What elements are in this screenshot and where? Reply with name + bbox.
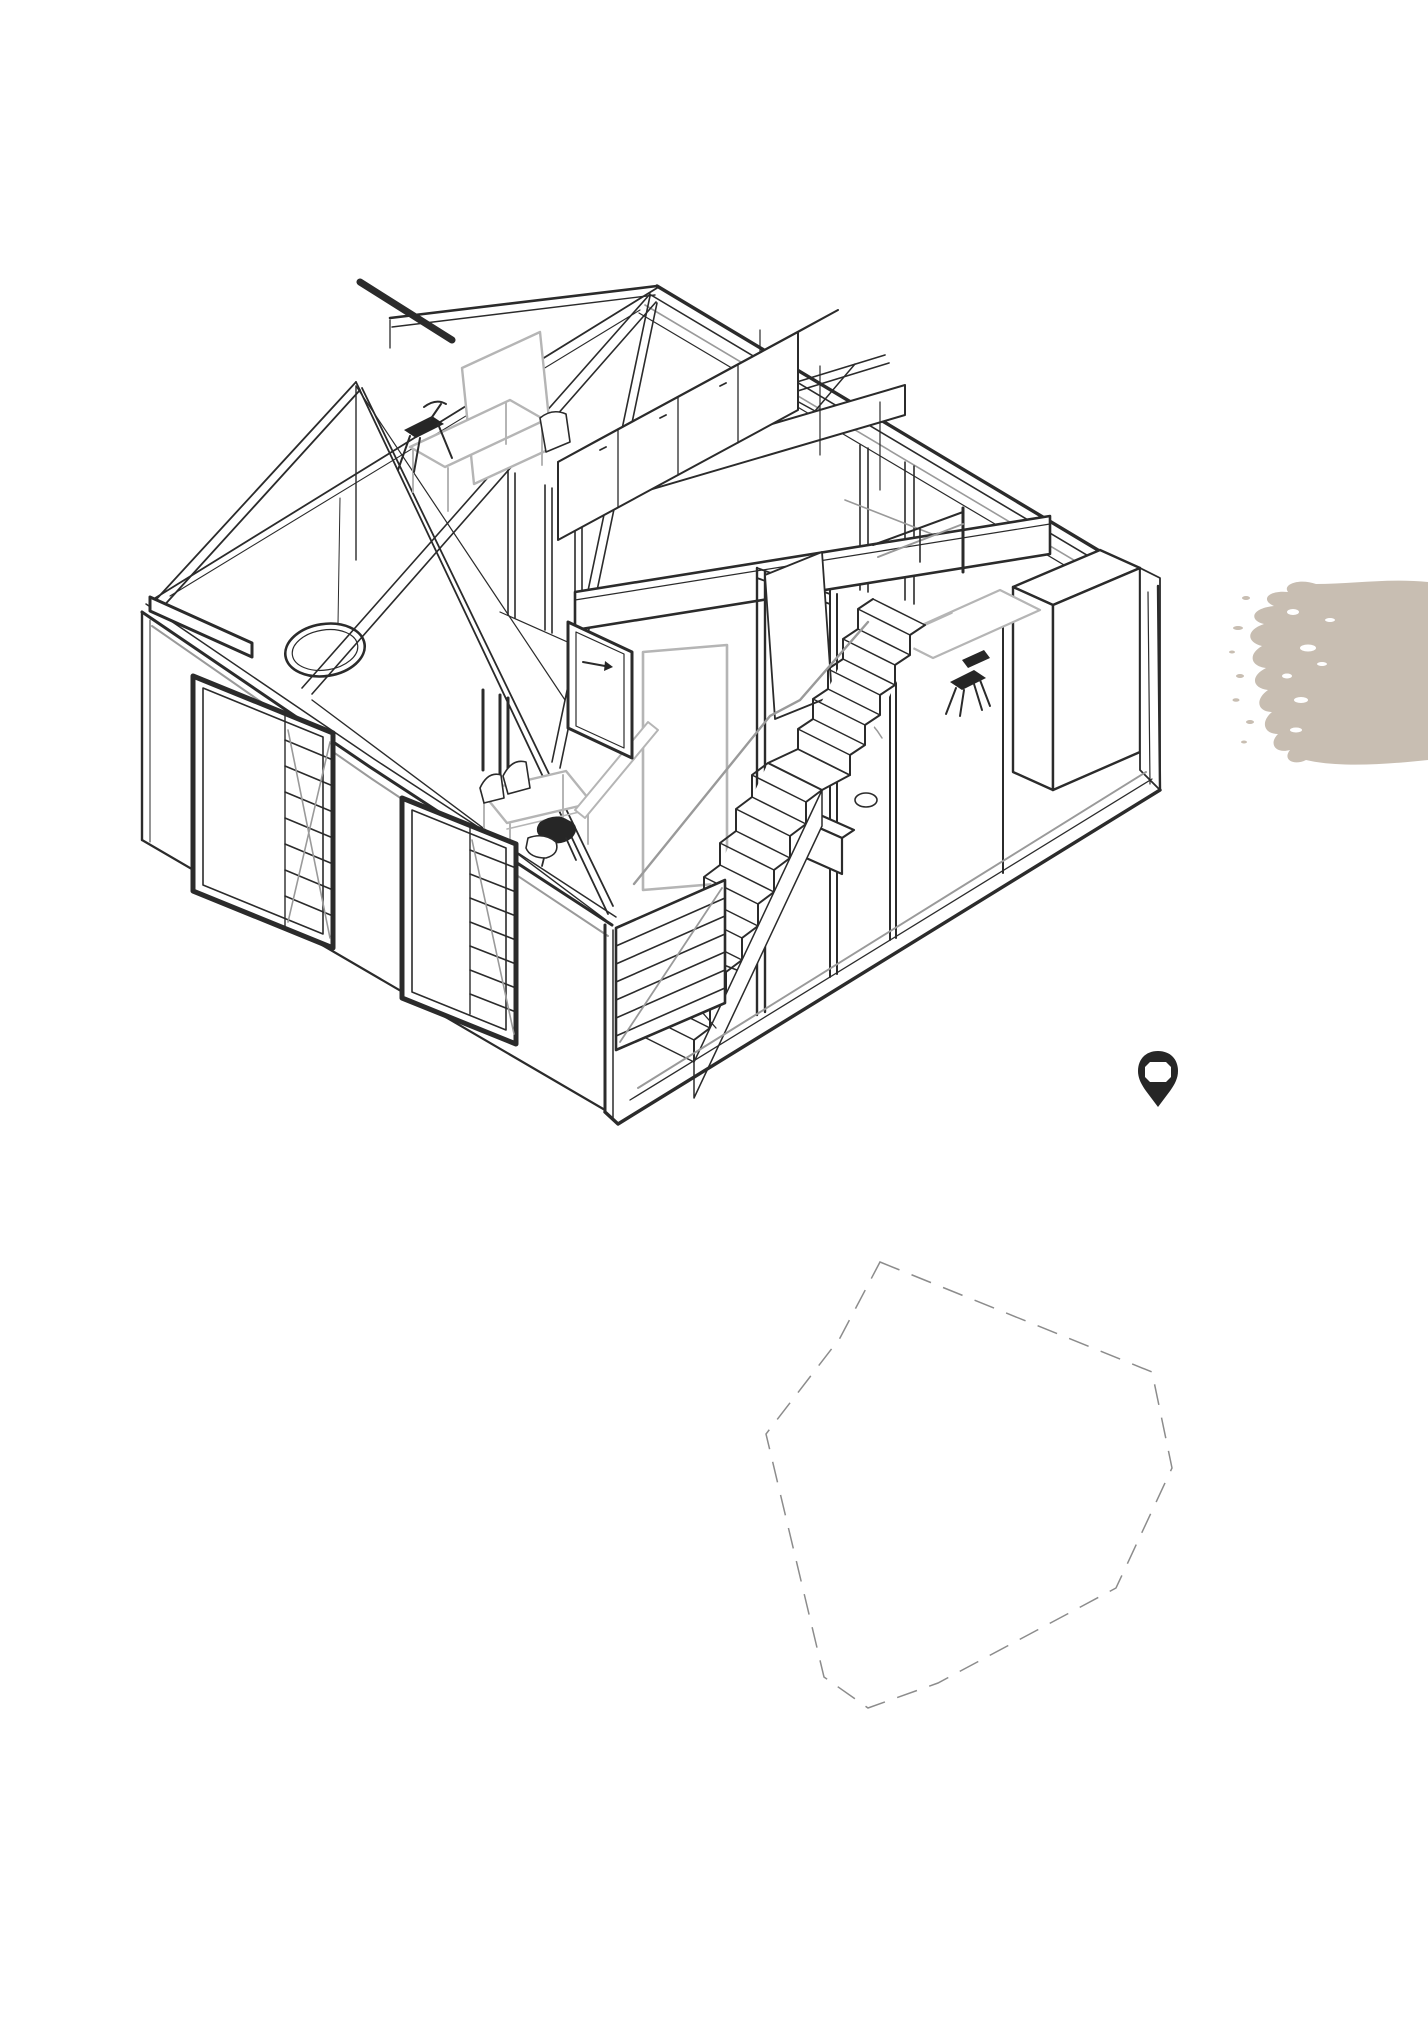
house-cutaway-drawing xyxy=(142,282,1160,1124)
attic-white-chair xyxy=(540,412,570,452)
armchair-white xyxy=(526,836,557,858)
paint-swatch-flecks xyxy=(1229,596,1254,744)
attic-desk-and-chairs xyxy=(398,332,570,511)
stair-partition-panel xyxy=(643,645,727,890)
pin-hole xyxy=(1145,1062,1171,1082)
bedroom-chair-back xyxy=(962,650,990,668)
toilet xyxy=(855,793,877,807)
site-boundary-outline xyxy=(766,1262,1172,1708)
window-right xyxy=(402,798,516,1044)
location-pin-icon xyxy=(1138,1051,1178,1107)
paint-swatch xyxy=(1229,581,1428,765)
dining-chair-white xyxy=(480,774,504,803)
page xyxy=(0,0,1428,2028)
wardrobe-box xyxy=(1013,550,1160,790)
paint-swatch-brush xyxy=(1250,581,1428,765)
interior-door xyxy=(568,622,632,758)
